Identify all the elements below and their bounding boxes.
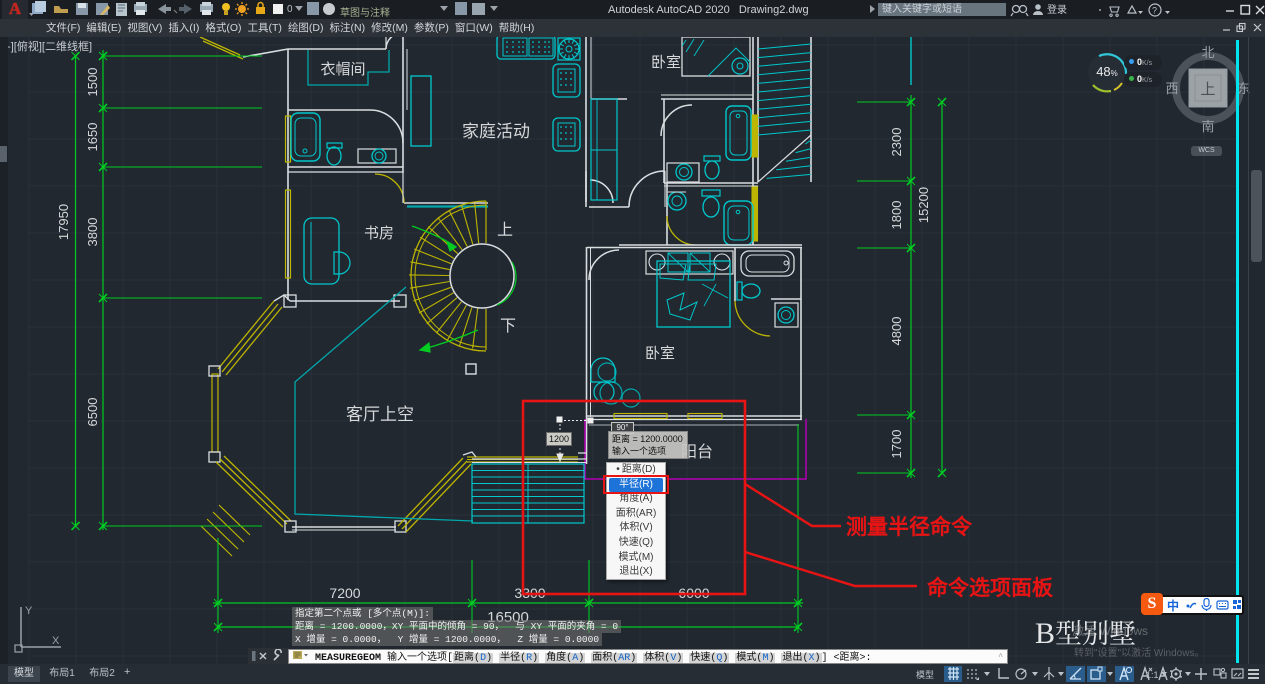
svg-text:6500: 6500	[85, 398, 100, 427]
svg-text:1:1: 1:1	[1146, 670, 1159, 680]
svg-text:命令选项面板: 命令选项面板	[927, 576, 1054, 600]
svg-text:1650: 1650	[85, 123, 100, 152]
svg-text:4800: 4800	[889, 317, 904, 346]
svg-text:登录: 登录	[1047, 3, 1067, 16]
svg-text:书房: 书房	[364, 225, 394, 242]
svg-text:模型: 模型	[916, 670, 934, 680]
svg-text:西: 西	[1165, 78, 1178, 97]
svg-text:3800: 3800	[85, 218, 100, 247]
svg-text:?: ?	[1152, 6, 1157, 16]
svg-text:1500: 1500	[85, 68, 100, 97]
svg-text:南: 南	[1201, 116, 1214, 135]
svg-text:卧室: 卧室	[651, 54, 681, 71]
svg-text:17950: 17950	[56, 204, 71, 240]
svg-text:下: 下	[500, 318, 516, 335]
svg-text:测量半径命令: 测量半径命令	[846, 515, 973, 539]
svg-text:X: X	[52, 635, 60, 647]
svg-text:上: 上	[497, 221, 513, 239]
svg-text:衣帽间: 衣帽间	[320, 61, 365, 78]
svg-text:1700: 1700	[889, 430, 904, 459]
svg-text:2300: 2300	[889, 128, 904, 157]
svg-text:Y: Y	[25, 605, 33, 617]
svg-text:卧室: 卧室	[645, 345, 675, 362]
svg-text:北: 北	[1201, 45, 1214, 61]
svg-text:7200: 7200	[329, 585, 360, 601]
svg-text:家庭活动: 家庭活动	[462, 122, 530, 141]
svg-text:上: 上	[1200, 78, 1215, 99]
svg-text:15200: 15200	[916, 187, 931, 223]
svg-text:1800: 1800	[889, 201, 904, 230]
svg-text:客厅上空: 客厅上空	[346, 405, 414, 424]
